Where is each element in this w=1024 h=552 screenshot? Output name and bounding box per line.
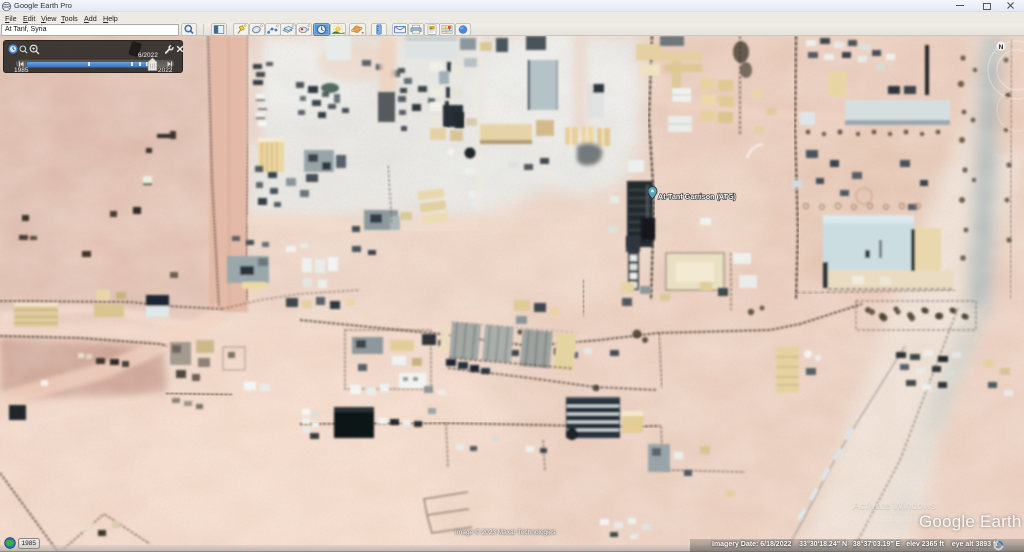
svg-text:At-Tanf Garrison (ATG): At-Tanf Garrison (ATG) <box>658 192 737 201</box>
svg-text:N: N <box>999 44 1004 51</box>
